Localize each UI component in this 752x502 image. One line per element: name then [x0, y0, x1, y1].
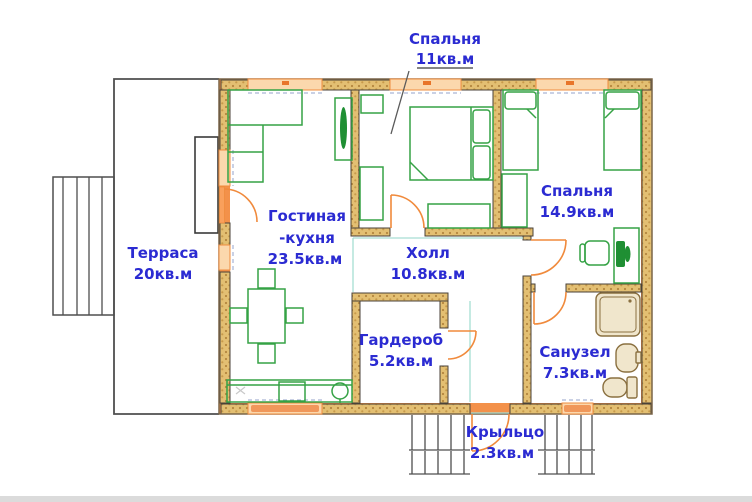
label-wardrobe: Гардероб 5.2кв.м [359, 331, 443, 370]
window-bathroom-bottom [562, 403, 593, 414]
window-kitchen-bottom [248, 403, 322, 414]
tv-stand-icon [335, 98, 352, 160]
desk-icon [614, 228, 639, 283]
window-living-top [248, 79, 322, 90]
label-living-kitchen: Гостиная -кухня 23.5кв.м [268, 207, 346, 268]
window-bedroom-top [390, 79, 461, 90]
svg-text:2.3кв.м: 2.3кв.м [470, 444, 534, 462]
svg-text:Спальня: Спальня [541, 182, 613, 200]
sink-icon [616, 344, 641, 372]
label-hall: Холл 10.8кв.м [391, 244, 466, 283]
hob-mark [236, 387, 245, 394]
svg-text:23.5кв.м: 23.5кв.м [268, 250, 343, 268]
kitchen-counter-icon [227, 380, 352, 403]
cabinet-icon [502, 174, 527, 227]
svg-text:Спальня: Спальня [409, 30, 481, 48]
svg-text:Терраса: Терраса [127, 244, 198, 262]
svg-text:14.9кв.м: 14.9кв.м [540, 203, 615, 221]
svg-text:5.2кв.м: 5.2кв.м [369, 352, 433, 370]
label-terrace: Терраса 20кв.м [127, 244, 198, 283]
svg-text:-кухня: -кухня [279, 229, 335, 247]
double-bed-icon [410, 107, 493, 180]
single-bed-right-icon [604, 90, 641, 170]
desk-chair-icon [580, 241, 609, 265]
label-bathroom: Санузел 7.3кв.м [539, 343, 610, 382]
nightstand-icon [361, 95, 383, 113]
wardrobe-door [448, 331, 476, 359]
bathroom-door [534, 292, 566, 324]
svg-text:20кв.м: 20кв.м [134, 265, 193, 283]
svg-text:7.3кв.м: 7.3кв.м [543, 364, 607, 382]
shower-icon [596, 293, 640, 336]
svg-text:Гостиная: Гостиная [268, 207, 346, 225]
bedroom-right-door [531, 240, 566, 275]
chimney-bay [195, 137, 218, 233]
svg-text:Крыльцо: Крыльцо [466, 423, 544, 441]
svg-text:Гардероб: Гардероб [359, 331, 443, 349]
svg-text:10.8кв.м: 10.8кв.м [391, 265, 466, 283]
window-bedroom-right [536, 79, 608, 90]
dresser-icon [428, 204, 490, 228]
closet-icon [360, 167, 383, 220]
label-porch: Крыльцо 2.3кв.м [466, 423, 544, 462]
svg-text:Санузел: Санузел [539, 343, 610, 361]
furniture-bedroom-top [360, 95, 493, 228]
dining-table-icon [230, 269, 303, 363]
single-bed-left-icon [503, 90, 538, 170]
bedroom-top-door [391, 195, 424, 228]
svg-text:Холл: Холл [406, 244, 450, 262]
corner-sofa-icon [228, 90, 302, 182]
label-bedroom-right: Спальня 14.9кв.м [540, 182, 615, 221]
bottom-bar [0, 496, 752, 502]
floor-plan-canvas: Спальня 11кв.м Спальня 14.9кв.м Терраса … [0, 0, 752, 502]
svg-text:11кв.м: 11кв.м [416, 50, 475, 68]
floor-plan-drawing: Спальня 11кв.м Спальня 14.9кв.м Терраса … [0, 0, 752, 502]
terrace-steps-icon [53, 177, 114, 315]
toilet-icon [603, 377, 637, 398]
window-left-lower [219, 245, 230, 270]
